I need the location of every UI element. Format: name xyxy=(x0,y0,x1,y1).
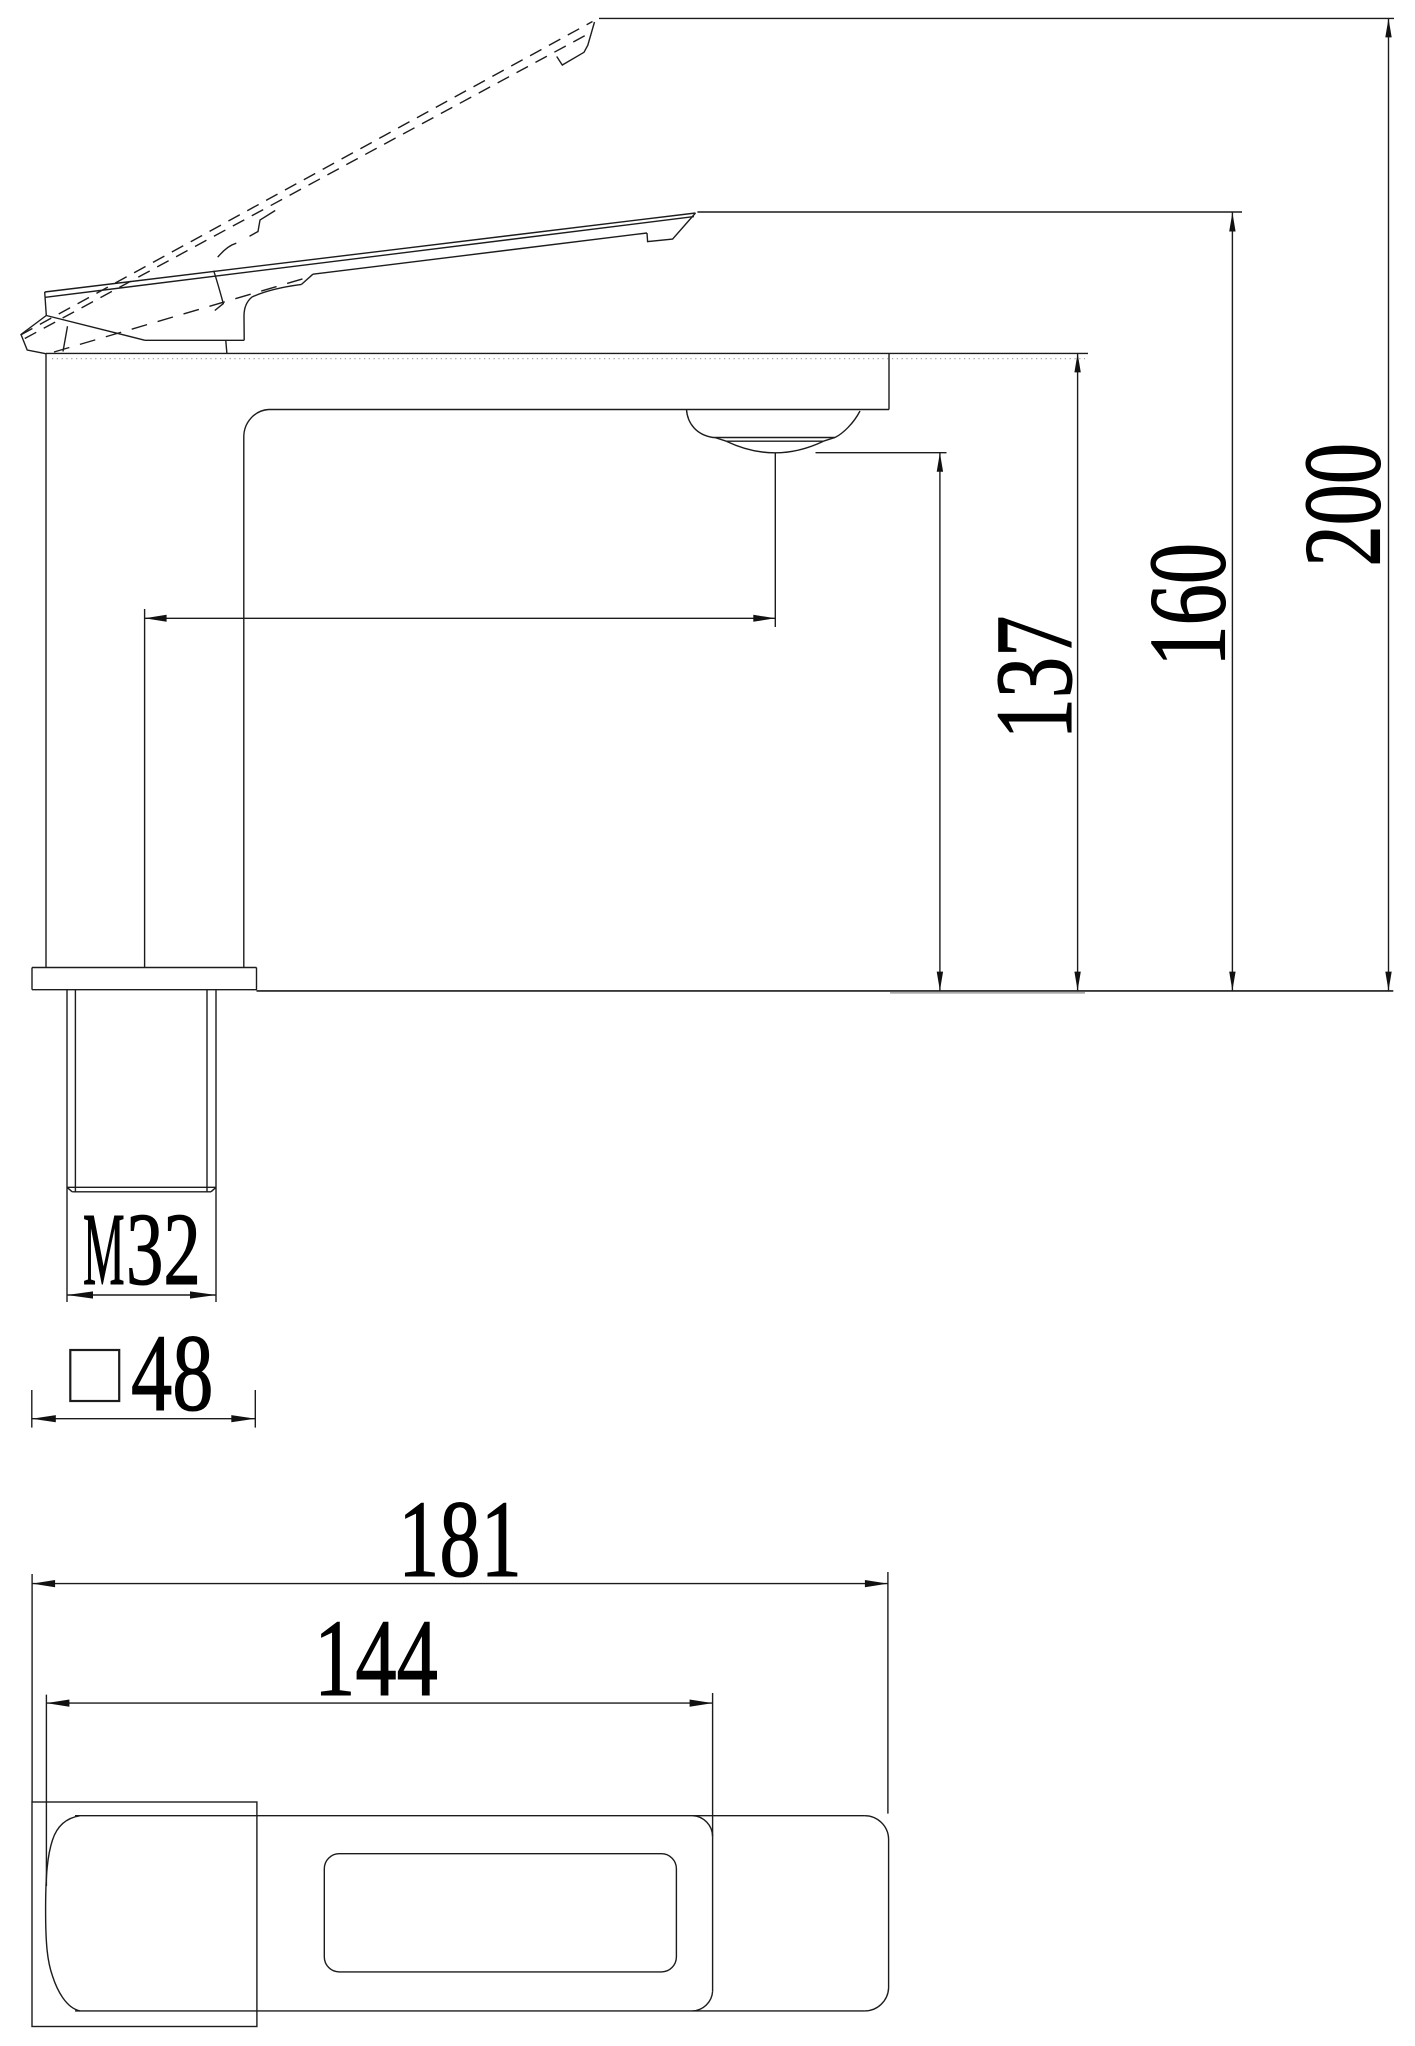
svg-text:200: 200 xyxy=(1282,443,1404,567)
svg-text:M: M xyxy=(83,1193,125,1308)
svg-text:137: 137 xyxy=(974,616,1096,740)
svg-text:144: 144 xyxy=(314,1598,438,1720)
svg-text:48: 48 xyxy=(131,1313,213,1435)
svg-text:160: 160 xyxy=(1127,543,1249,667)
svg-text:32: 32 xyxy=(126,1191,201,1307)
svg-text:181: 181 xyxy=(398,1479,522,1601)
